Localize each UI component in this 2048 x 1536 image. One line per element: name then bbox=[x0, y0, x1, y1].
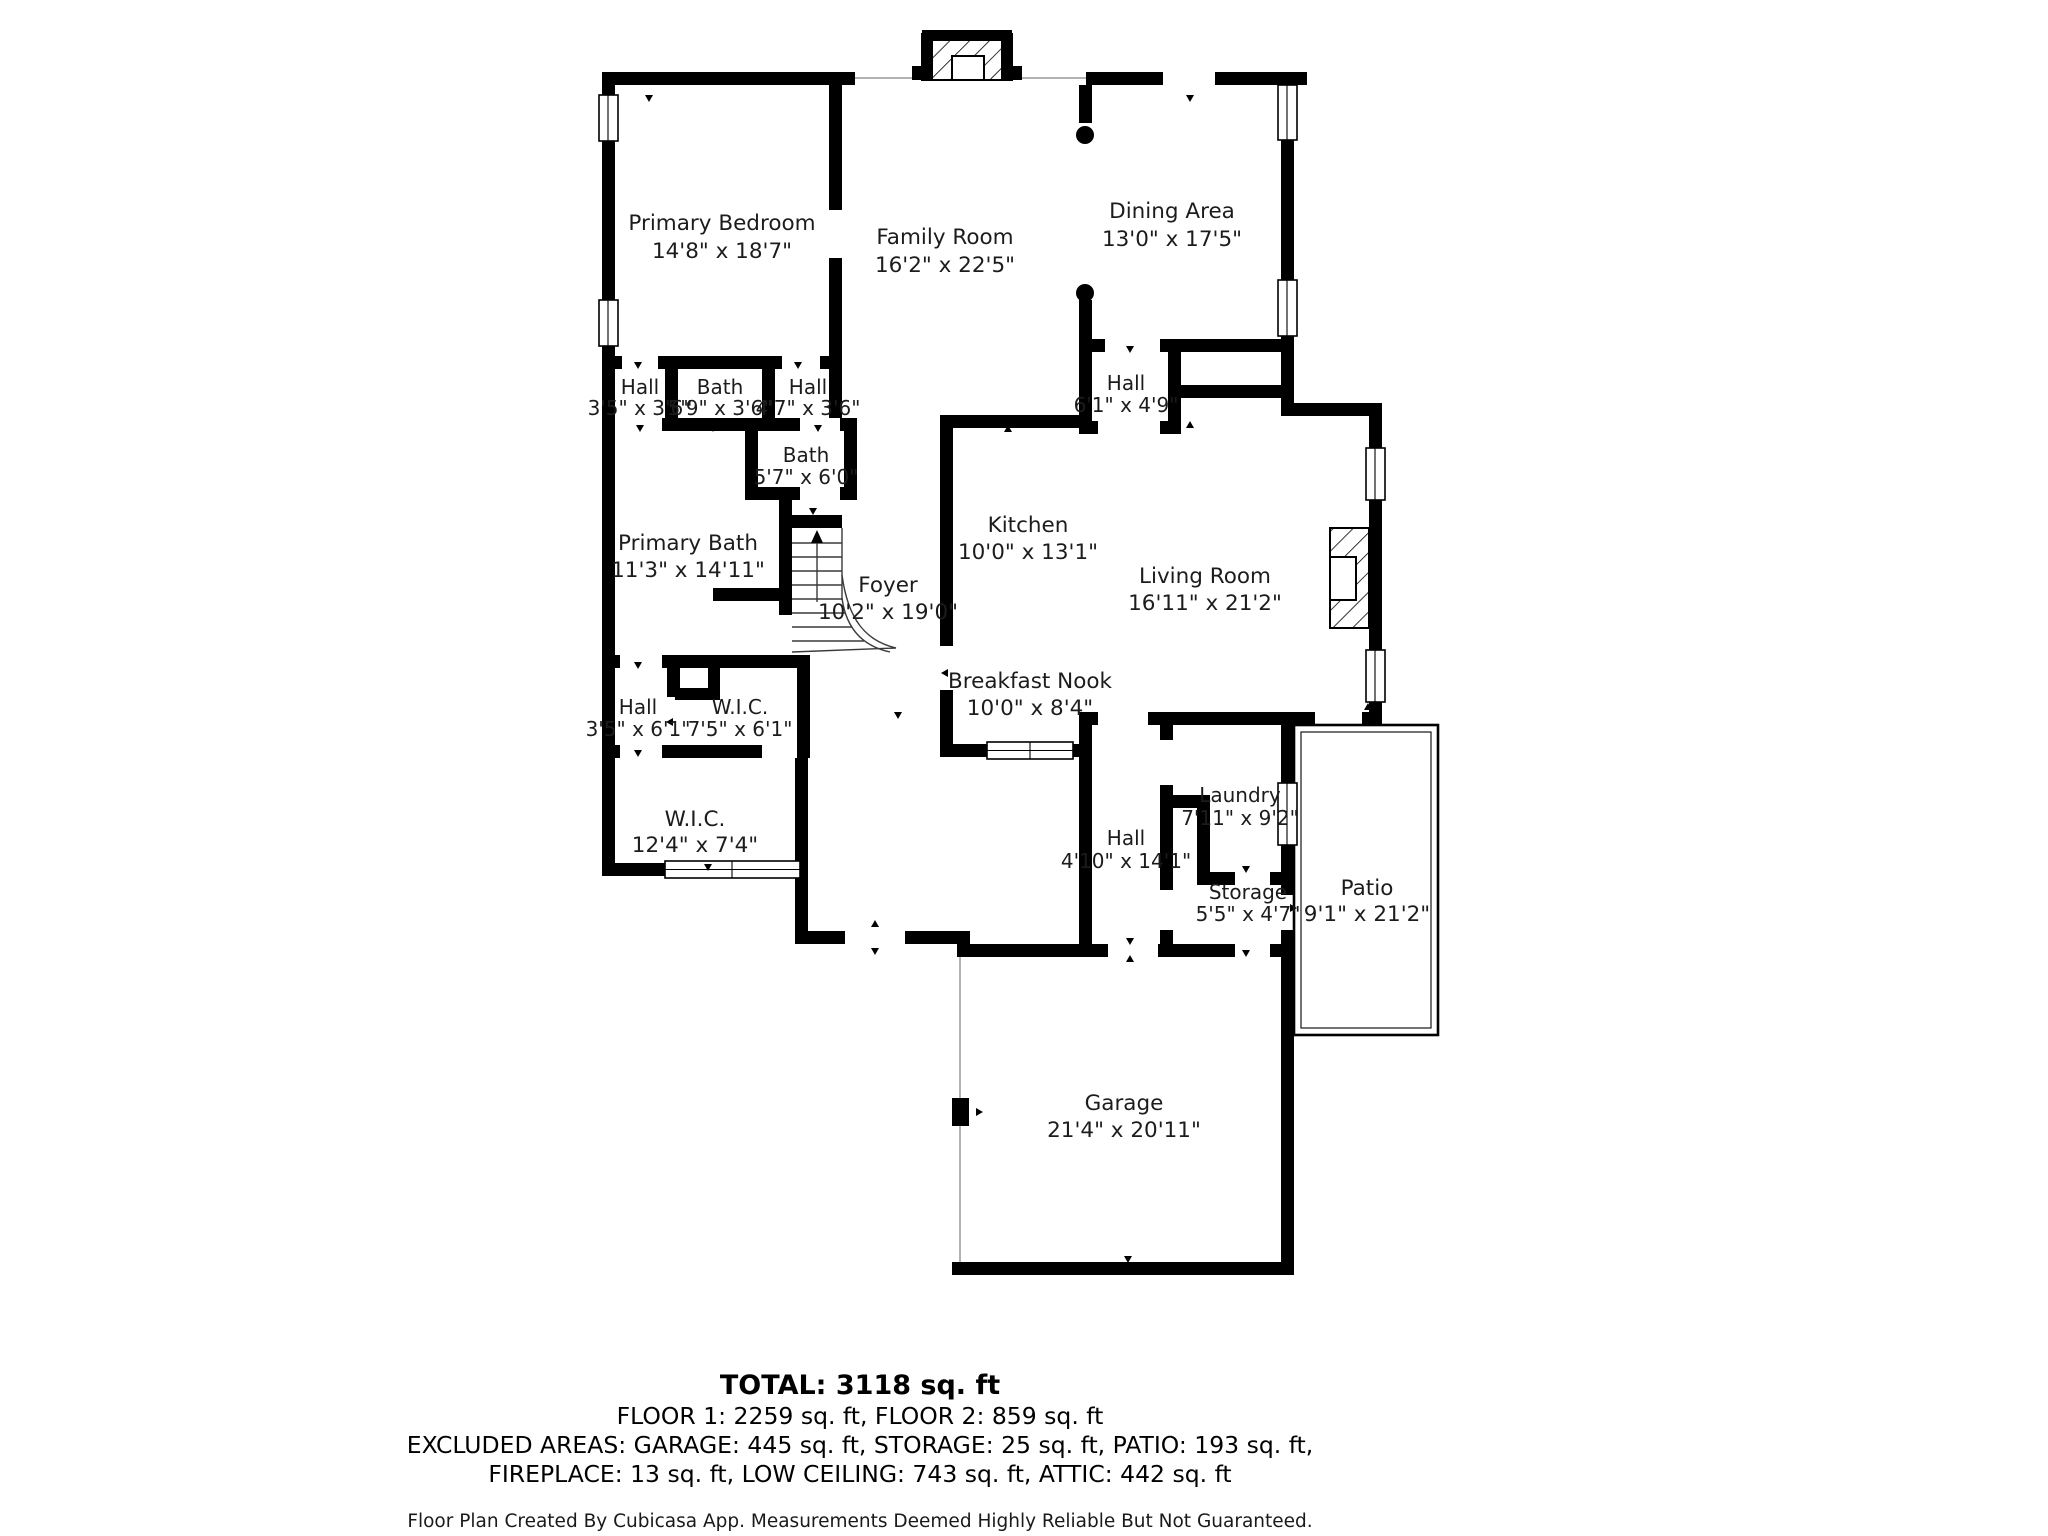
svg-text:7'5" x 6'1": 7'5" x 6'1" bbox=[688, 717, 793, 741]
floor-plan-page: Primary Bedroom 14'8" x 18'7" Family Roo… bbox=[0, 0, 2048, 1536]
svg-text:4'7" x 3'6": 4'7" x 3'6" bbox=[756, 396, 861, 420]
window-icon bbox=[1366, 650, 1385, 702]
window-icon bbox=[599, 300, 618, 346]
svg-text:W.I.C.: W.I.C. bbox=[665, 807, 726, 832]
room-label-primary-bath: Primary Bath 11'3" x 14'11" bbox=[611, 531, 765, 583]
floors-area-text: FLOOR 1: 2259 sq. ft, FLOOR 2: 859 sq. f… bbox=[617, 1402, 1104, 1430]
fireplace-top-icon bbox=[912, 30, 1022, 80]
floor-plan-drawing: Primary Bedroom 14'8" x 18'7" Family Roo… bbox=[0, 0, 2048, 1536]
room-label-wic-large: W.I.C. 12'4" x 7'4" bbox=[632, 807, 758, 858]
window-icon bbox=[665, 861, 800, 878]
room-label-patio: Patio 9'1" x 21'2" bbox=[1304, 876, 1430, 927]
svg-text:4'10" x 14'1": 4'10" x 14'1" bbox=[1061, 849, 1191, 873]
svg-text:Storage: Storage bbox=[1209, 880, 1287, 904]
room-label-hall-lower-left: Hall 3'5" x 6'1" bbox=[586, 695, 691, 741]
door-pivot-dots bbox=[1076, 126, 1094, 302]
svg-text:Hall: Hall bbox=[619, 695, 657, 719]
window-icon bbox=[987, 742, 1073, 759]
svg-text:21'4" x 20'11": 21'4" x 20'11" bbox=[1047, 1118, 1201, 1143]
svg-text:Living Room: Living Room bbox=[1139, 564, 1271, 589]
svg-text:Hall: Hall bbox=[1107, 826, 1145, 850]
summary-footer: TOTAL: 3118 sq. ft FLOOR 1: 2259 sq. ft,… bbox=[407, 1370, 1314, 1532]
svg-text:5'5" x 4'7": 5'5" x 4'7" bbox=[1196, 902, 1301, 926]
svg-text:Laundry: Laundry bbox=[1199, 783, 1281, 807]
room-label-kitchen: Kitchen 10'0" x 13'1" bbox=[958, 513, 1098, 565]
credit-text: Floor Plan Created By Cubicasa App. Meas… bbox=[407, 1511, 1312, 1532]
excluded-areas-text-1: EXCLUDED AREAS: GARAGE: 445 sq. ft, STOR… bbox=[407, 1431, 1314, 1459]
svg-text:10'0" x 8'4": 10'0" x 8'4" bbox=[967, 696, 1093, 721]
svg-text:Bath: Bath bbox=[783, 443, 830, 467]
room-label-wic-small: W.I.C. 7'5" x 6'1" bbox=[688, 695, 793, 741]
svg-text:Primary Bedroom: Primary Bedroom bbox=[628, 211, 815, 236]
windows bbox=[599, 85, 1385, 878]
room-label-dining-area: Dining Area 13'0" x 17'5" bbox=[1102, 199, 1242, 252]
svg-text:Dining Area: Dining Area bbox=[1109, 199, 1235, 224]
window-icon bbox=[1366, 448, 1385, 500]
svg-text:Foyer: Foyer bbox=[858, 573, 918, 598]
room-label-garage: Garage 21'4" x 20'11" bbox=[1047, 1091, 1201, 1143]
svg-text:10'0" x 13'1": 10'0" x 13'1" bbox=[958, 540, 1098, 565]
room-label-family-room: Family Room 16'2" x 22'5" bbox=[875, 225, 1015, 278]
window-icon bbox=[1278, 85, 1297, 140]
room-label-primary-bedroom: Primary Bedroom 14'8" x 18'7" bbox=[628, 211, 815, 264]
room-label-bath-middle: Bath 5'7" x 6'0" bbox=[754, 443, 859, 489]
svg-text:Hall: Hall bbox=[1107, 371, 1145, 395]
svg-text:Breakfast Nook: Breakfast Nook bbox=[948, 669, 1113, 694]
svg-text:16'11" x 21'2": 16'11" x 21'2" bbox=[1128, 591, 1282, 616]
svg-text:16'2" x 22'5": 16'2" x 22'5" bbox=[875, 253, 1015, 278]
svg-text:10'2" x 19'0": 10'2" x 19'0" bbox=[818, 600, 958, 625]
svg-text:7'11" x 9'2": 7'11" x 9'2" bbox=[1181, 806, 1299, 830]
svg-text:3'5" x 6'1": 3'5" x 6'1" bbox=[586, 717, 691, 741]
excluded-areas-text-2: FIREPLACE: 13 sq. ft, LOW CEILING: 743 s… bbox=[488, 1460, 1231, 1488]
room-label-storage: Storage 5'5" x 4'7" bbox=[1196, 880, 1301, 926]
fireplace-living-icon bbox=[1330, 528, 1369, 628]
room-label-breakfast-nook: Breakfast Nook 10'0" x 8'4" bbox=[948, 669, 1113, 721]
svg-text:14'8" x 18'7": 14'8" x 18'7" bbox=[652, 239, 792, 264]
window-icon bbox=[599, 95, 618, 141]
svg-text:Family Room: Family Room bbox=[876, 225, 1013, 250]
svg-text:6'1" x 4'9": 6'1" x 4'9" bbox=[1074, 393, 1179, 417]
window-icon bbox=[1278, 280, 1297, 336]
svg-text:13'0" x 17'5": 13'0" x 17'5" bbox=[1102, 227, 1242, 252]
svg-text:W.I.C.: W.I.C. bbox=[712, 695, 768, 719]
svg-text:11'3" x 14'11": 11'3" x 14'11" bbox=[611, 558, 765, 583]
svg-text:Garage: Garage bbox=[1085, 1091, 1164, 1116]
svg-text:Patio: Patio bbox=[1341, 876, 1394, 901]
total-area-text: TOTAL: 3118 sq. ft bbox=[720, 1370, 1000, 1401]
svg-text:Primary Bath: Primary Bath bbox=[618, 531, 758, 556]
svg-text:Kitchen: Kitchen bbox=[988, 513, 1069, 538]
room-label-living-room: Living Room 16'11" x 21'2" bbox=[1128, 564, 1282, 616]
svg-text:12'4" x 7'4": 12'4" x 7'4" bbox=[632, 833, 758, 858]
svg-text:9'1" x 21'2": 9'1" x 21'2" bbox=[1304, 902, 1430, 927]
svg-text:5'7" x 6'0": 5'7" x 6'0" bbox=[754, 465, 859, 489]
